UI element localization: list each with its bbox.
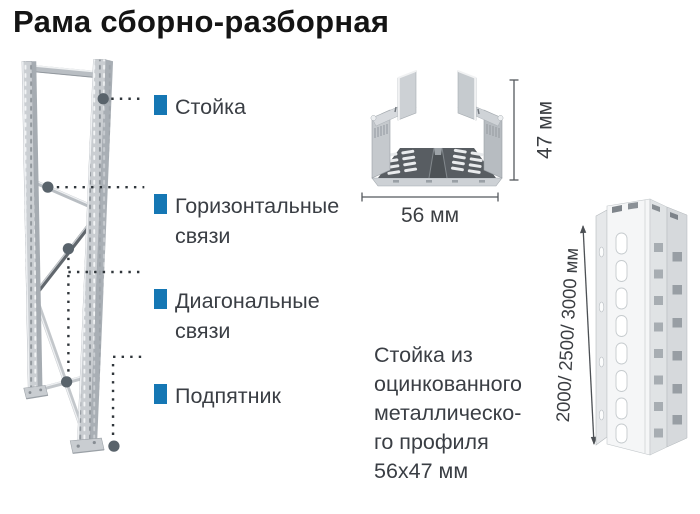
height-dimension-label: 47 мм [534, 101, 557, 159]
callout-diagonal-braces: Диагональные связи [154, 286, 320, 346]
diagonal-brace-dark [35, 223, 89, 293]
description-line: металлическо- [374, 399, 539, 428]
callout-bullet-icon [154, 384, 167, 404]
callout-upright: Стойка [154, 92, 246, 122]
callout-label: Подпятник [175, 381, 281, 411]
cross-section-diagram: 47 мм 56 мм [350, 60, 565, 235]
callout-label: Горизонтальные связи [175, 191, 339, 251]
profile-description: Стойка из оцинкованного металлическо- го… [374, 341, 539, 486]
infographic-page: Рама сборно-разборная [0, 0, 700, 514]
length-dimension: 2000/ 2500/ 3000 мм [552, 225, 597, 445]
callout-label-line: связи [175, 221, 339, 251]
left-ear-flange [398, 71, 416, 120]
profile-cross-section [371, 71, 503, 186]
description-line: го профиля [374, 428, 539, 457]
callout-bullet-icon [154, 289, 167, 309]
top-horizontal-brace [32, 65, 98, 78]
width-dimension-label: 56 мм [401, 204, 459, 227]
wall-ribs [375, 124, 499, 138]
callout-label-line: Стойка [175, 92, 246, 122]
page-title: Рама сборно-разборная [13, 4, 493, 40]
length-dimension-label: 2000/ 2500/ 3000 мм [552, 247, 582, 422]
right-upright [77, 59, 113, 446]
callout-label-line: Горизонтальные [175, 191, 339, 221]
callout-footplate: Подпятник [154, 381, 281, 411]
width-dimension: 56 мм [362, 193, 498, 228]
callout-bullet-icon [154, 95, 167, 115]
middle-horizontal-brace [34, 180, 89, 206]
upright-profile-illustration: 2000/ 2500/ 3000 мм [550, 190, 700, 514]
right-footplate [70, 438, 104, 453]
description-line: оцинкованного [374, 370, 539, 399]
callout-horizontal-braces: Горизонтальные связи [154, 191, 339, 251]
callout-label-line: Подпятник [175, 381, 281, 411]
diagonal-brace-light [36, 301, 85, 438]
description-line: 56х47 мм [374, 457, 539, 486]
callout-bullet-icon [154, 194, 167, 214]
left-upright [22, 61, 43, 390]
height-dimension: 47 мм [510, 80, 557, 180]
right-ear-flange [458, 71, 476, 120]
callout-label-line: связи [175, 316, 320, 346]
description-line: Стойка из [374, 341, 539, 370]
callout-label: Стойка [175, 92, 246, 122]
callout-label: Диагональные связи [175, 286, 320, 346]
left-footplate [24, 385, 48, 398]
upright-column [596, 199, 687, 455]
callout-label-line: Диагональные [175, 286, 320, 316]
rack-frame-illustration [0, 55, 160, 514]
